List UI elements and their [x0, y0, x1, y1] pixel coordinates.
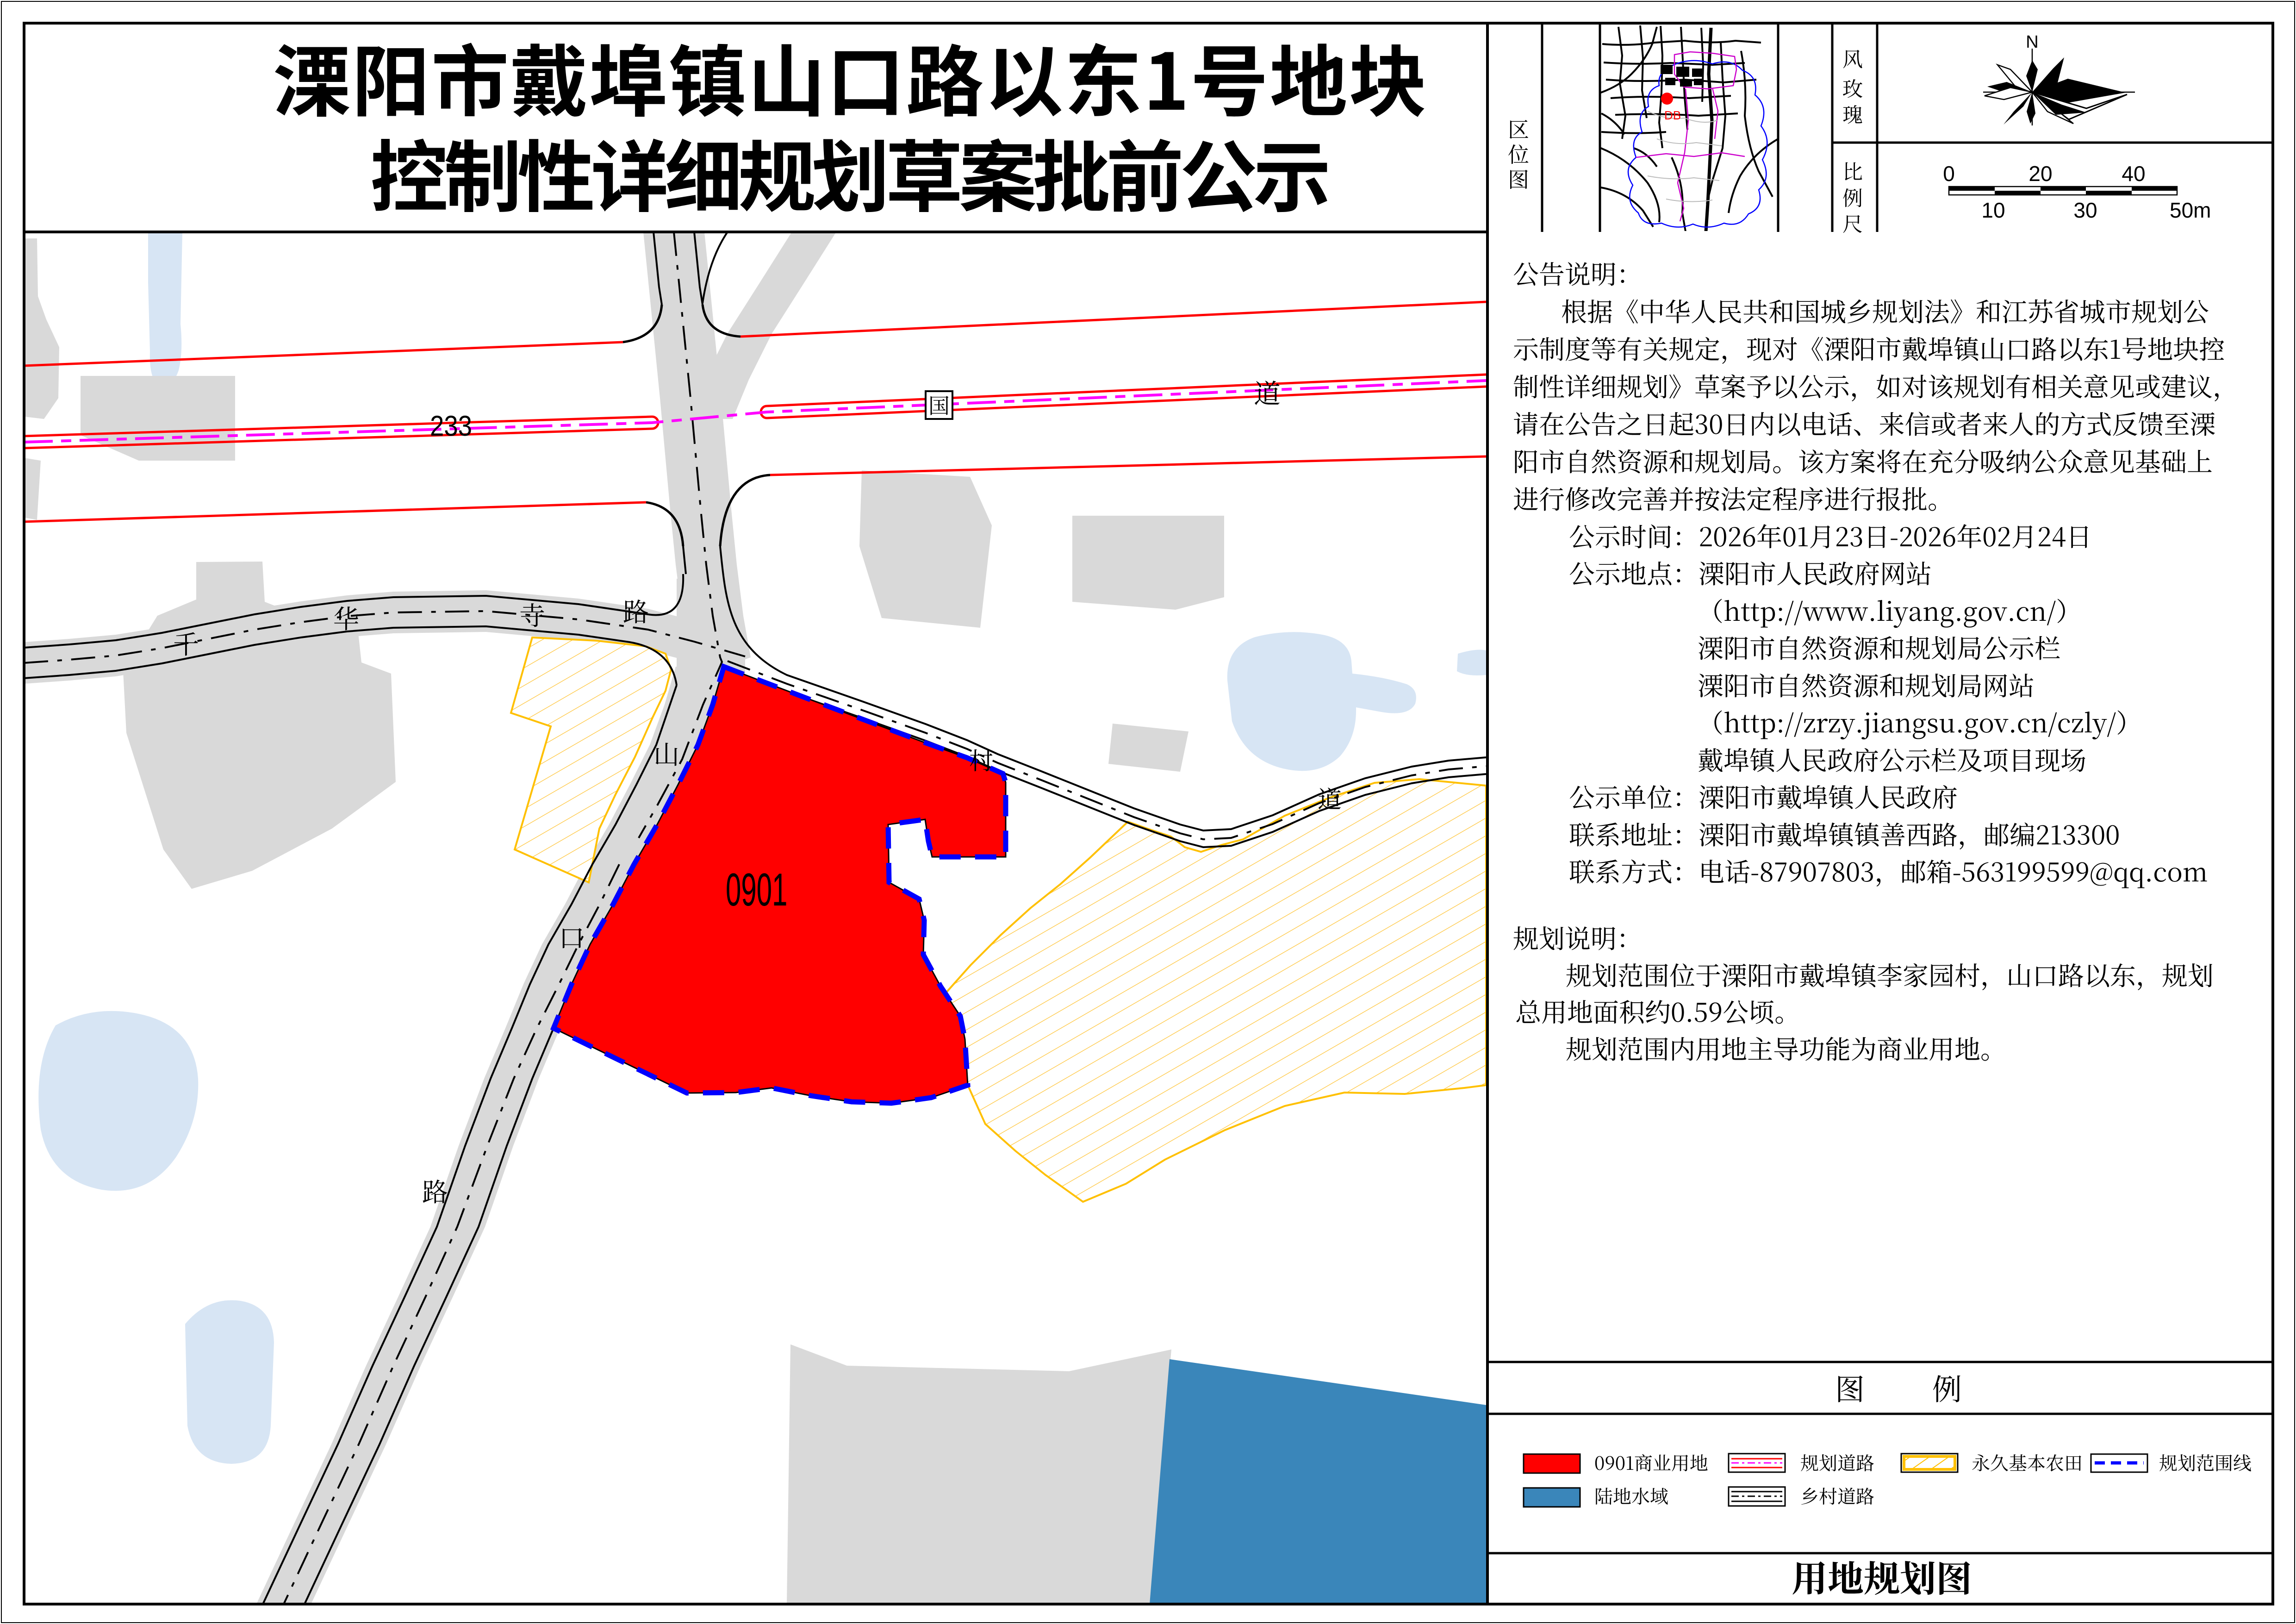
svg-text:40: 40: [2122, 162, 2145, 186]
svg-text:10: 10: [1981, 198, 2005, 222]
svg-text:0: 0: [1943, 162, 1955, 186]
svg-text:30: 30: [2073, 198, 2097, 222]
svg-text:50m: 50m: [2170, 198, 2211, 222]
svg-text:20: 20: [2028, 162, 2052, 186]
svg-text:N: N: [2026, 32, 2038, 52]
